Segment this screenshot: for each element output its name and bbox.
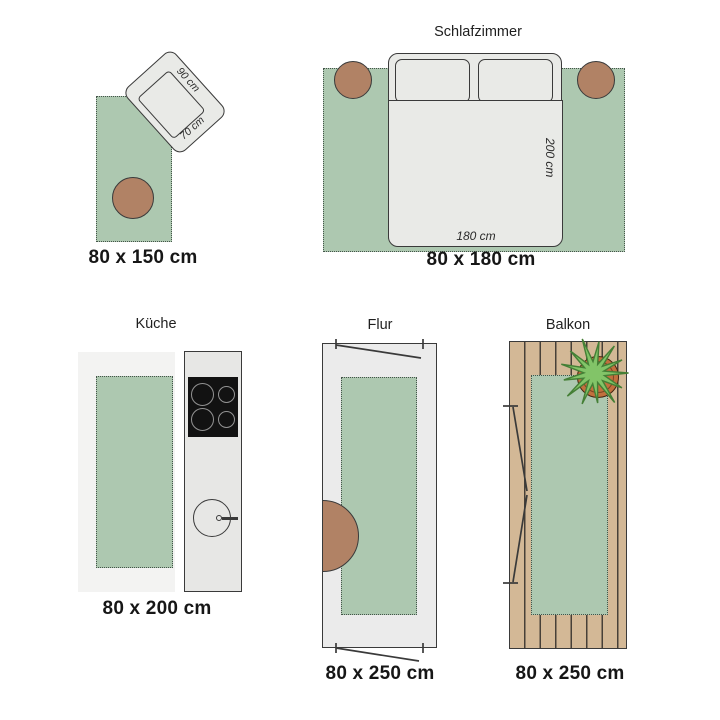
stool-icon	[577, 61, 615, 99]
stool-icon	[334, 61, 372, 99]
bed-width-label: 180 cm	[426, 230, 526, 242]
bedroom-title: Schlafzimmer	[378, 25, 578, 41]
kitchen-title: Küche	[56, 317, 256, 333]
size-label-hallway: 80 x 250 cm	[280, 664, 480, 685]
burner-icon	[218, 386, 235, 403]
burner-icon	[218, 411, 235, 428]
burner-icon	[191, 383, 214, 406]
bed-icon	[388, 53, 562, 246]
rug-80x250-hall	[341, 377, 417, 615]
size-label-kitchen: 80 x 200 cm	[57, 599, 257, 620]
pillow-icon	[395, 59, 470, 103]
stool-icon	[112, 177, 154, 219]
burner-icon	[191, 408, 214, 431]
cooktop-icon	[188, 377, 238, 437]
faucet-icon	[222, 517, 238, 520]
balcony-title: Balkon	[468, 318, 668, 334]
bed-length-label: 200 cm	[544, 138, 556, 177]
pillow-icon	[478, 59, 553, 103]
rug-size-guide: 90 cm 70 cm 80 x 150 cm Schlafzimmer 200…	[0, 0, 720, 720]
plant-icon	[558, 337, 630, 409]
size-label-bedroom: 80 x 180 cm	[381, 250, 581, 271]
rug-80x250-balcony	[531, 375, 608, 615]
size-label-balcony: 80 x 250 cm	[470, 664, 670, 685]
hallway-title: Flur	[280, 318, 480, 334]
duvet-icon	[388, 100, 563, 247]
door-swing-icon	[329, 637, 429, 665]
rug-80x200	[96, 376, 173, 568]
door-swing-icon	[329, 335, 429, 363]
door-swing-icon	[501, 398, 533, 590]
size-label-living: 80 x 150 cm	[43, 248, 243, 269]
